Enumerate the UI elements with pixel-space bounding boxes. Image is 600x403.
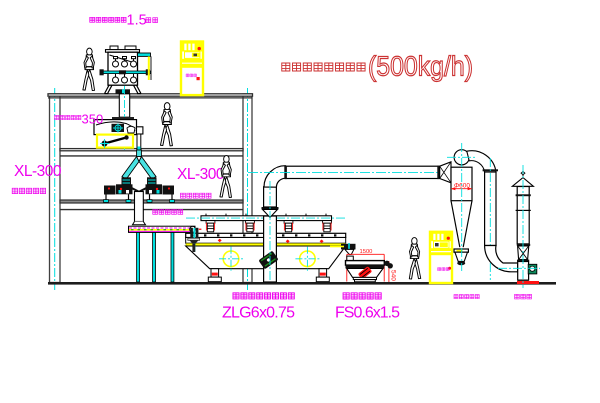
svg-text:1.5: 1.5 [127,13,147,29]
svg-text:ZLG6x0.75: ZLG6x0.75 [222,305,295,322]
svg-text:(500kg/h): (500kg/h) [368,51,473,82]
svg-text:1500: 1500 [360,249,373,255]
svg-text:350: 350 [82,111,104,126]
svg-text:540: 540 [390,270,397,281]
svg-text:XL-300: XL-300 [177,166,225,183]
svg-text:XL-300: XL-300 [14,163,62,180]
svg-text:FS0.6x1.5: FS0.6x1.5 [335,305,400,322]
svg-text:Φ600: Φ600 [454,183,470,190]
